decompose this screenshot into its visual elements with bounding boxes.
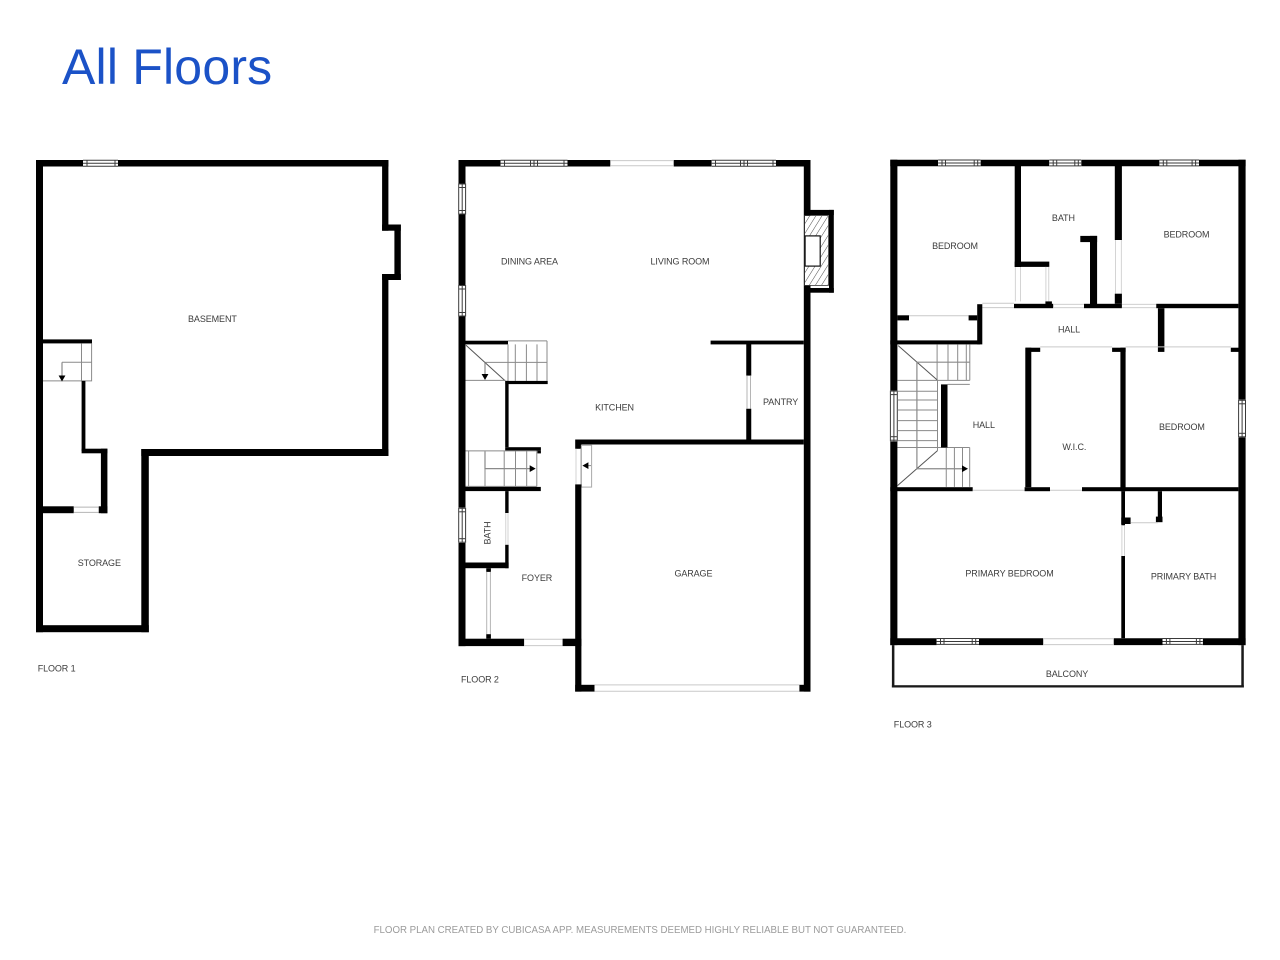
svg-text:BATH: BATH xyxy=(1052,213,1075,223)
svg-text:W.I.C.: W.I.C. xyxy=(1062,442,1086,452)
svg-text:PANTRY: PANTRY xyxy=(763,397,798,407)
svg-text:FOYER: FOYER xyxy=(522,573,553,583)
svg-text:GARAGE: GARAGE xyxy=(674,569,712,579)
svg-text:HALL: HALL xyxy=(973,420,995,430)
svg-text:KITCHEN: KITCHEN xyxy=(595,403,634,413)
svg-text:FLOOR 2: FLOOR 2 xyxy=(461,675,499,685)
svg-text:PRIMARY BEDROOM: PRIMARY BEDROOM xyxy=(965,568,1053,578)
svg-text:BEDROOM: BEDROOM xyxy=(1164,230,1210,240)
svg-text:All Floors: All Floors xyxy=(62,39,272,95)
svg-text:LIVING ROOM: LIVING ROOM xyxy=(651,257,710,267)
svg-text:BEDROOM: BEDROOM xyxy=(1159,422,1205,432)
svg-text:FLOOR PLAN CREATED BY CUBICASA: FLOOR PLAN CREATED BY CUBICASA APP. MEAS… xyxy=(374,925,907,936)
svg-text:PRIMARY BATH: PRIMARY BATH xyxy=(1151,572,1216,582)
svg-text:BALCONY: BALCONY xyxy=(1046,669,1088,679)
svg-text:BASEMENT: BASEMENT xyxy=(188,314,237,324)
svg-text:HALL: HALL xyxy=(1058,324,1080,334)
svg-text:DINING AREA: DINING AREA xyxy=(501,257,558,267)
svg-text:BEDROOM: BEDROOM xyxy=(932,241,978,251)
svg-text:BATH: BATH xyxy=(482,522,492,545)
svg-text:STORAGE: STORAGE xyxy=(78,558,121,568)
svg-text:FLOOR 1: FLOOR 1 xyxy=(38,663,76,673)
svg-text:FLOOR 3: FLOOR 3 xyxy=(894,720,932,730)
